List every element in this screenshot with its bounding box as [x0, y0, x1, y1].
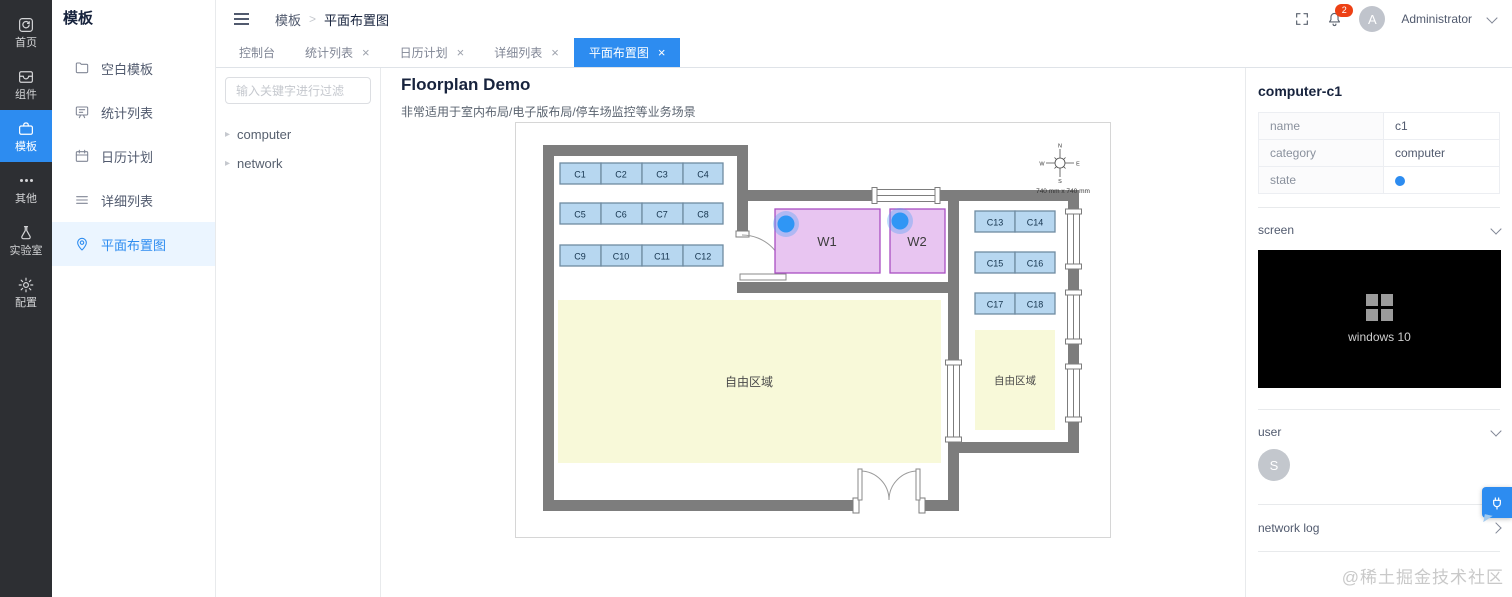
free-area-label: 自由区域	[994, 374, 1036, 387]
briefcase-icon	[17, 120, 35, 138]
sidebar-item-label: 其他	[15, 193, 37, 205]
flask-icon	[17, 224, 35, 242]
tab-console[interactable]: 控制台	[224, 38, 290, 67]
sidebar-item-other[interactable]: 其他	[0, 162, 52, 214]
properties-table: name c1 category computer state	[1258, 112, 1500, 194]
search-input[interactable]	[225, 77, 371, 104]
svg-text:C12: C12	[695, 252, 712, 262]
chevron-right-icon[interactable]	[1490, 522, 1501, 533]
table-row: category computer	[1259, 140, 1500, 167]
tab-stats-list[interactable]: 统计列表 ×	[290, 38, 385, 67]
menu-item-label: 日历计划	[101, 147, 153, 166]
floorplan-drawing: 自由区域 自由区域	[516, 123, 1110, 537]
menu-item-blank-template[interactable]: 空白模板	[52, 46, 215, 90]
sidebar-item-templates[interactable]: 模板	[0, 110, 52, 162]
menu-item-floorplan[interactable]: 平面布置图	[52, 222, 215, 266]
tree-node-network[interactable]: ▸ network	[216, 149, 380, 177]
inspector-panel: computer-c1 name c1 category computer st…	[1245, 68, 1512, 597]
divider	[1258, 551, 1500, 552]
sidebar-item-components[interactable]: 组件	[0, 58, 52, 110]
page-subtitle: 非常适用于室内布局/电子版布局/停车场监控等业务场景	[401, 103, 696, 120]
username[interactable]: Administrator	[1401, 12, 1472, 26]
property-value: computer	[1384, 140, 1500, 167]
user-avatar[interactable]: A	[1359, 6, 1385, 32]
close-icon[interactable]: ×	[362, 45, 370, 60]
tab-detail-list[interactable]: 详细列表 ×	[479, 38, 574, 67]
divider	[1258, 409, 1500, 410]
svg-text:C5: C5	[574, 210, 586, 220]
secondary-sidebar-title: 模板	[52, 0, 215, 38]
menu-item-calendar-plan[interactable]: 日历计划	[52, 134, 215, 178]
menu-item-label: 详细列表	[101, 191, 153, 210]
window	[946, 360, 962, 442]
svg-text:C10: C10	[613, 252, 630, 262]
breadcrumb: 模板 > 平面布置图	[275, 10, 389, 29]
sidebar-item-settings[interactable]: 配置	[0, 266, 52, 318]
notifications-button[interactable]: 2	[1326, 11, 1343, 28]
tab-label: 控制台	[239, 44, 275, 61]
sidebar-item-label: 模板	[15, 141, 37, 153]
notification-badge: 2	[1335, 4, 1353, 17]
menu-item-label: 统计列表	[101, 103, 153, 122]
tree-node-computer[interactable]: ▸ computer	[216, 120, 380, 148]
breadcrumb-item-current: 平面布置图	[324, 10, 389, 29]
chevron-down-icon[interactable]	[1486, 12, 1497, 23]
breadcrumb-item[interactable]: 模板	[275, 10, 301, 29]
more-dots-icon	[20, 172, 33, 190]
watermark: @稀土掘金技术社区	[1342, 563, 1504, 588]
scale-label: 740 mm x 740 mm	[1036, 188, 1090, 195]
folder-icon	[74, 60, 90, 76]
sidebar-item-label: 首页	[15, 37, 37, 49]
svg-text:C2: C2	[615, 170, 627, 180]
section-label: user	[1258, 425, 1281, 439]
floorplan-canvas-area: Floorplan Demo 非常适用于室内布局/电子版布局/停车场监控等业务场…	[381, 68, 1245, 597]
svg-text:C1: C1	[574, 170, 586, 180]
fullscreen-icon[interactable]	[1294, 11, 1310, 27]
free-area-label: 自由区域	[725, 375, 773, 389]
state-dot	[1395, 176, 1405, 186]
caret-right-icon[interactable]: ▸	[225, 129, 230, 140]
tree-node-label: network	[237, 156, 283, 171]
table-row: name c1	[1259, 113, 1500, 140]
close-icon[interactable]: ×	[551, 45, 559, 60]
close-icon[interactable]: ×	[658, 45, 666, 60]
section-label: screen	[1258, 223, 1294, 237]
sidebar-item-label: 配置	[15, 297, 37, 309]
svg-text:S: S	[1058, 179, 1062, 185]
menu-item-label: 空白模板	[101, 59, 153, 78]
section-screen[interactable]: screen	[1258, 220, 1500, 240]
property-label: category	[1259, 140, 1384, 167]
svg-text:C17: C17	[987, 300, 1004, 310]
svg-text:C16: C16	[1027, 259, 1044, 269]
svg-text:N: N	[1058, 144, 1062, 150]
svg-text:C7: C7	[656, 210, 668, 220]
close-icon[interactable]: ×	[457, 45, 465, 60]
svg-text:C8: C8	[697, 210, 709, 220]
plug-icon	[1489, 495, 1505, 511]
property-label: name	[1259, 113, 1384, 140]
tree-node-label: computer	[237, 127, 291, 142]
collapse-menu-icon[interactable]	[230, 9, 253, 29]
calendar-icon	[74, 148, 90, 164]
divider	[1258, 504, 1500, 505]
connection-fab-button[interactable]	[1482, 487, 1512, 518]
svg-text:C18: C18	[1027, 300, 1044, 310]
room-label: W1	[817, 234, 837, 249]
svg-text:C11: C11	[654, 252, 670, 262]
user-avatar[interactable]: S	[1258, 449, 1290, 481]
section-user[interactable]: user	[1258, 422, 1500, 442]
svg-text:W: W	[1039, 161, 1045, 167]
components-icon	[17, 68, 35, 86]
svg-text:E: E	[1076, 161, 1080, 167]
svg-text:C14: C14	[1027, 218, 1044, 228]
chevron-down-icon[interactable]	[1490, 425, 1501, 436]
tree-panel: ▸ computer ▸ network	[216, 68, 381, 597]
sidebar-item-label: 组件	[15, 89, 37, 101]
section-label: network log	[1258, 521, 1319, 535]
map-pin-icon	[74, 236, 90, 252]
inspector-title: computer-c1	[1258, 83, 1500, 99]
screen-preview[interactable]: windows 10	[1258, 250, 1501, 388]
floorplan-panel: 自由区域 自由区域	[515, 122, 1111, 538]
sidebar-item-label: 实验室	[10, 245, 43, 257]
logo-icon	[17, 16, 35, 34]
svg-text:C6: C6	[615, 210, 627, 220]
divider	[1258, 207, 1500, 208]
svg-text:C13: C13	[987, 218, 1004, 228]
tab-floorplan[interactable]: 平面布置图 ×	[574, 38, 681, 67]
table-row: state	[1259, 167, 1500, 194]
tab-bar: 控制台 统计列表 × 日历计划 × 详细列表 × 平面布置图 ×	[216, 38, 1512, 68]
breadcrumb-separator-icon: >	[309, 12, 316, 26]
os-label: windows 10	[1348, 330, 1411, 344]
sidebar-item-lab[interactable]: 实验室	[0, 214, 52, 266]
tab-label: 统计列表	[305, 44, 353, 61]
section-network-log[interactable]: network log	[1258, 518, 1500, 538]
room-label: W2	[907, 234, 927, 249]
app-window: 首页 组件 模板 其他 实验室 配置 模板 空白模板	[0, 0, 1512, 597]
tab-label: 日历计划	[400, 44, 448, 61]
primary-sidebar: 首页 组件 模板 其他 实验室 配置	[0, 0, 52, 597]
gear-icon	[17, 276, 35, 294]
windows-logo-icon	[1366, 294, 1393, 321]
svg-text:C4: C4	[697, 170, 709, 180]
svg-text:C15: C15	[987, 259, 1004, 269]
stats-list-icon	[74, 104, 90, 120]
secondary-sidebar: 模板 空白模板 统计列表 日历计划 详细列表 平面布置图	[52, 0, 216, 597]
tab-label: 详细列表	[494, 44, 542, 61]
compass-icon	[1046, 149, 1074, 177]
window	[872, 188, 940, 204]
window	[1066, 209, 1082, 422]
caret-right-icon[interactable]: ▸	[225, 158, 230, 169]
property-value: c1	[1384, 113, 1500, 140]
tab-calendar-plan[interactable]: 日历计划 ×	[385, 38, 480, 67]
page-title: Floorplan Demo	[401, 75, 530, 95]
sidebar-item-home[interactable]: 首页	[0, 6, 52, 58]
property-label: state	[1259, 167, 1384, 194]
tab-label: 平面布置图	[589, 44, 649, 61]
top-header: 模板 > 平面布置图 2 A Administrator	[216, 0, 1512, 39]
menu-item-detail-list[interactable]: 详细列表	[52, 178, 215, 222]
list-icon	[74, 192, 90, 208]
door-double	[853, 469, 925, 513]
menu-item-stats-list[interactable]: 统计列表	[52, 90, 215, 134]
svg-text:C3: C3	[656, 170, 668, 180]
menu-item-label: 平面布置图	[101, 235, 166, 254]
svg-text:C9: C9	[574, 252, 586, 262]
chevron-down-icon[interactable]	[1490, 223, 1501, 234]
